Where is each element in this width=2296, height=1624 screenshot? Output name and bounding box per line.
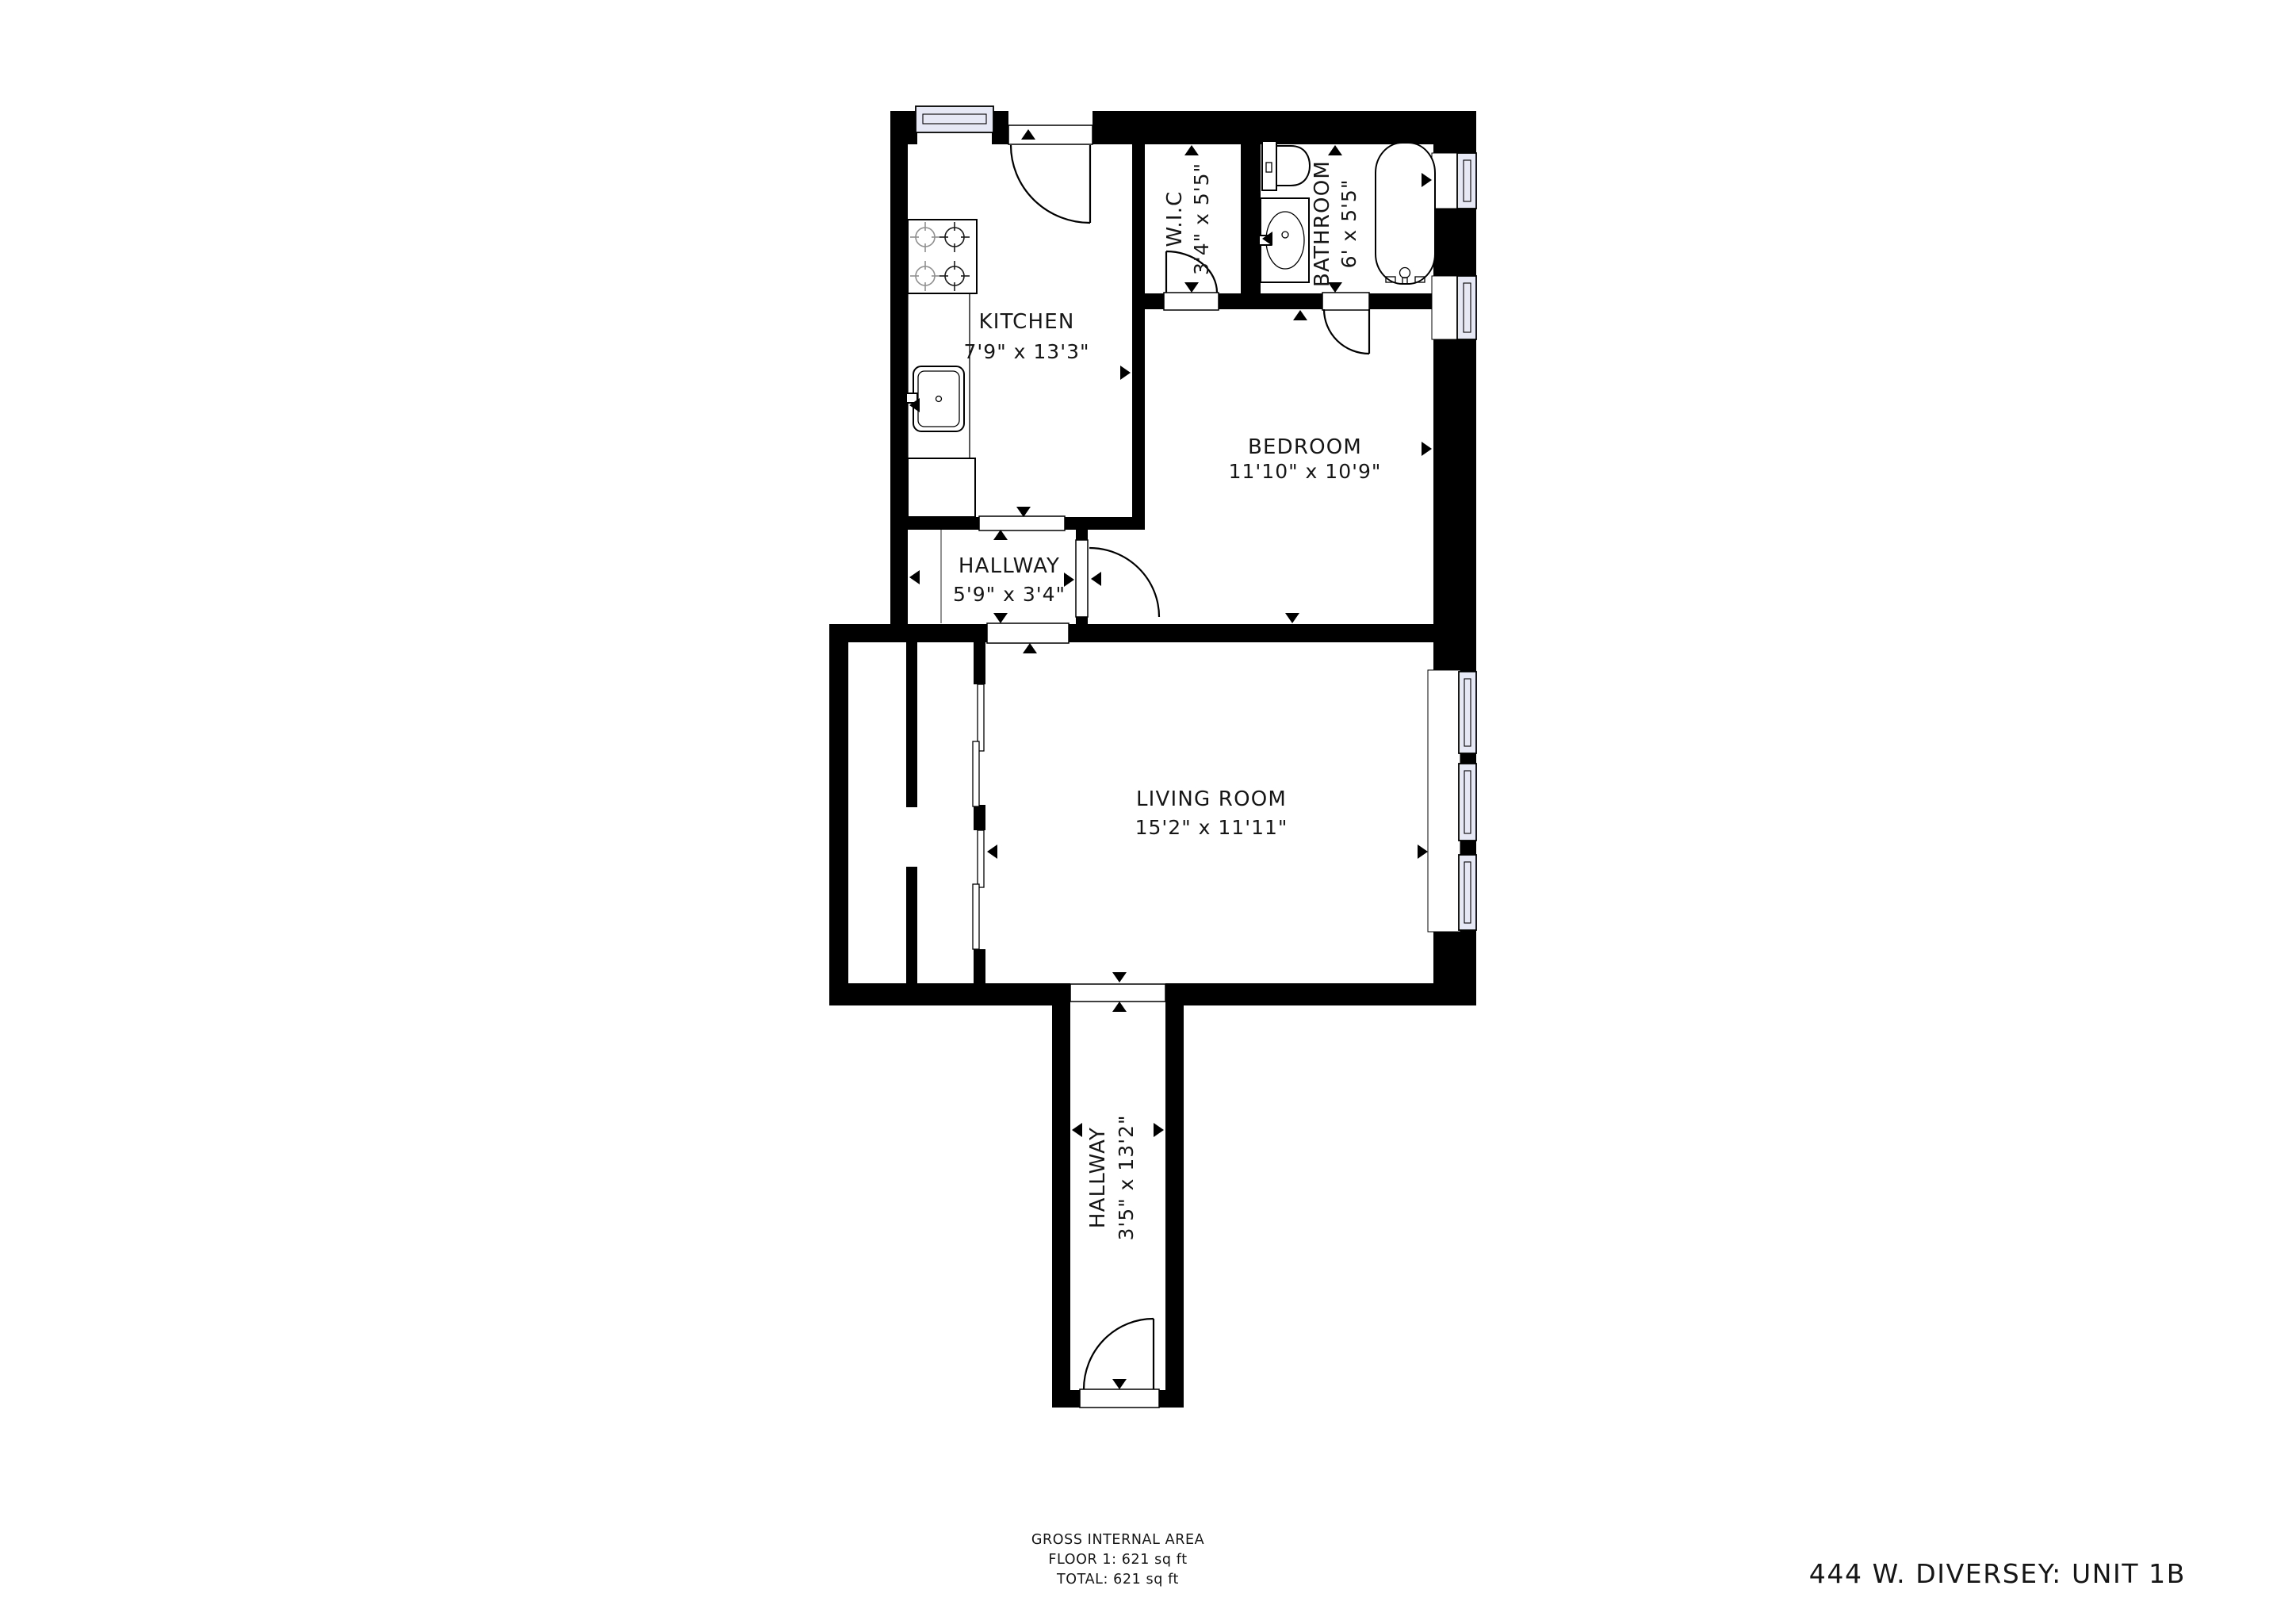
partition-panel-2: [973, 741, 979, 806]
living-room-dims: 15'2" x 11'11": [1135, 816, 1288, 839]
wall-wic-bath-bottom-2: [1219, 293, 1322, 309]
kitchen-cabinet: [908, 458, 975, 517]
kitchen-window: [916, 106, 993, 132]
bathroom-window-bay: [1432, 153, 1460, 209]
entry-hallway-label: HALLWAY: [1086, 1127, 1110, 1228]
wall-wic-bath-bottom-3: [1369, 293, 1435, 309]
partition-panel-3: [978, 830, 984, 887]
kitchen-top-threshold: [1008, 125, 1093, 144]
living-room-label: LIVING ROOM: [1136, 787, 1287, 811]
bedroom-dims: 11'10" x 10'9": [1229, 460, 1382, 483]
wall-hallway-right-upper: [1076, 517, 1088, 540]
wic-label: W.I.C: [1163, 190, 1187, 247]
wall-living-bottom-right: [1165, 983, 1476, 1005]
wall-exterior-left-lower: [829, 642, 848, 1005]
bedroom-window-bay: [1432, 276, 1460, 339]
wall-partition-mid: [974, 805, 985, 830]
wic-dims: 3'4" x 5'5": [1190, 163, 1213, 275]
kitchen-dims: 7'9" x 13'3": [964, 340, 1090, 363]
living-entryhall-threshold: [1070, 984, 1165, 1002]
wall-partition-top: [974, 642, 985, 684]
bedroom-label: BEDROOM: [1248, 435, 1362, 459]
living-window-bay: [1428, 670, 1460, 932]
wall-living-bottom-left: [829, 983, 1070, 1005]
bathroom-dims: 6' x 5'5": [1337, 179, 1360, 269]
wall-top-right-segment: [1093, 111, 1476, 144]
living-window-1: [1459, 672, 1476, 753]
wall-entry-bottom-left: [1052, 1390, 1080, 1408]
gross-area-line: GROSS INTERNAL AREA: [1031, 1532, 1204, 1548]
entry-hallway-dims: 3'5" x 13'2": [1115, 1115, 1138, 1241]
wall-entry-hall-right: [1165, 1005, 1184, 1408]
wall-closet-upper: [906, 642, 917, 807]
entry-door-threshold: [1080, 1389, 1159, 1408]
bathroom-threshold: [1322, 293, 1369, 310]
wall-kitchen-right: [1132, 111, 1145, 530]
plan-title: 444 W. DIVERSEY: UNIT 1B: [1809, 1558, 2186, 1589]
entry-door-arc: [1084, 1319, 1154, 1389]
total-area-line: TOTAL: 621 sq ft: [1056, 1572, 1179, 1588]
bathroom-window: [1457, 153, 1476, 209]
floor-plan-page: KITCHEN 7'9" x 13'3" W.I.C 3'4" x 5'5" B…: [0, 0, 2296, 1624]
bathroom-door-arc: [1324, 309, 1369, 354]
wall-wic-bath-bottom-1: [1132, 293, 1164, 309]
living-window-2: [1459, 764, 1476, 841]
wall-bedroom-living-right: [1069, 624, 1476, 642]
bedroom-door-leaf: [1076, 540, 1088, 617]
wall-entry-hall-left: [1052, 1005, 1070, 1408]
floor1-area-line: FLOOR 1: 621 sq ft: [1048, 1552, 1187, 1568]
wall-kitchen-bottom-left: [890, 517, 979, 530]
wall-partition-bottom: [974, 949, 985, 983]
toilet: [1262, 141, 1310, 190]
kitchen-window-sill: [917, 132, 992, 144]
wic-threshold: [1164, 293, 1219, 310]
floor-plan-canvas: KITCHEN 7'9" x 13'3" W.I.C 3'4" x 5'5" B…: [0, 0, 2296, 1624]
kitchen-label: KITCHEN: [978, 310, 1074, 334]
wall-closet-lower: [906, 867, 917, 983]
wall-wic-right: [1241, 111, 1261, 309]
wall-exterior-left-upper: [890, 111, 908, 642]
bathroom-label: BATHROOM: [1311, 160, 1334, 287]
kitchen-door-arc: [1011, 145, 1090, 223]
kitchen-fixtures: [906, 220, 977, 517]
kitchen-bottom-threshold: [979, 516, 1065, 530]
wall-bedroom-living-left: [829, 624, 987, 642]
wall-entry-bottom-right: [1159, 1390, 1184, 1408]
bedroom-window: [1457, 276, 1476, 339]
walls: [829, 111, 1476, 1408]
living-window-3: [1459, 855, 1476, 930]
hallway-label: HALLWAY: [959, 554, 1060, 578]
bathtub: [1376, 143, 1435, 284]
hallway-dims: 5'9" x 3'4": [953, 583, 1066, 606]
kitchen-sink: [906, 366, 964, 431]
partition-panel-4: [973, 884, 979, 949]
hallway-living-threshold: [987, 623, 1069, 643]
area-summary: GROSS INTERNAL AREA FLOOR 1: 621 sq ft T…: [1031, 1532, 1204, 1588]
